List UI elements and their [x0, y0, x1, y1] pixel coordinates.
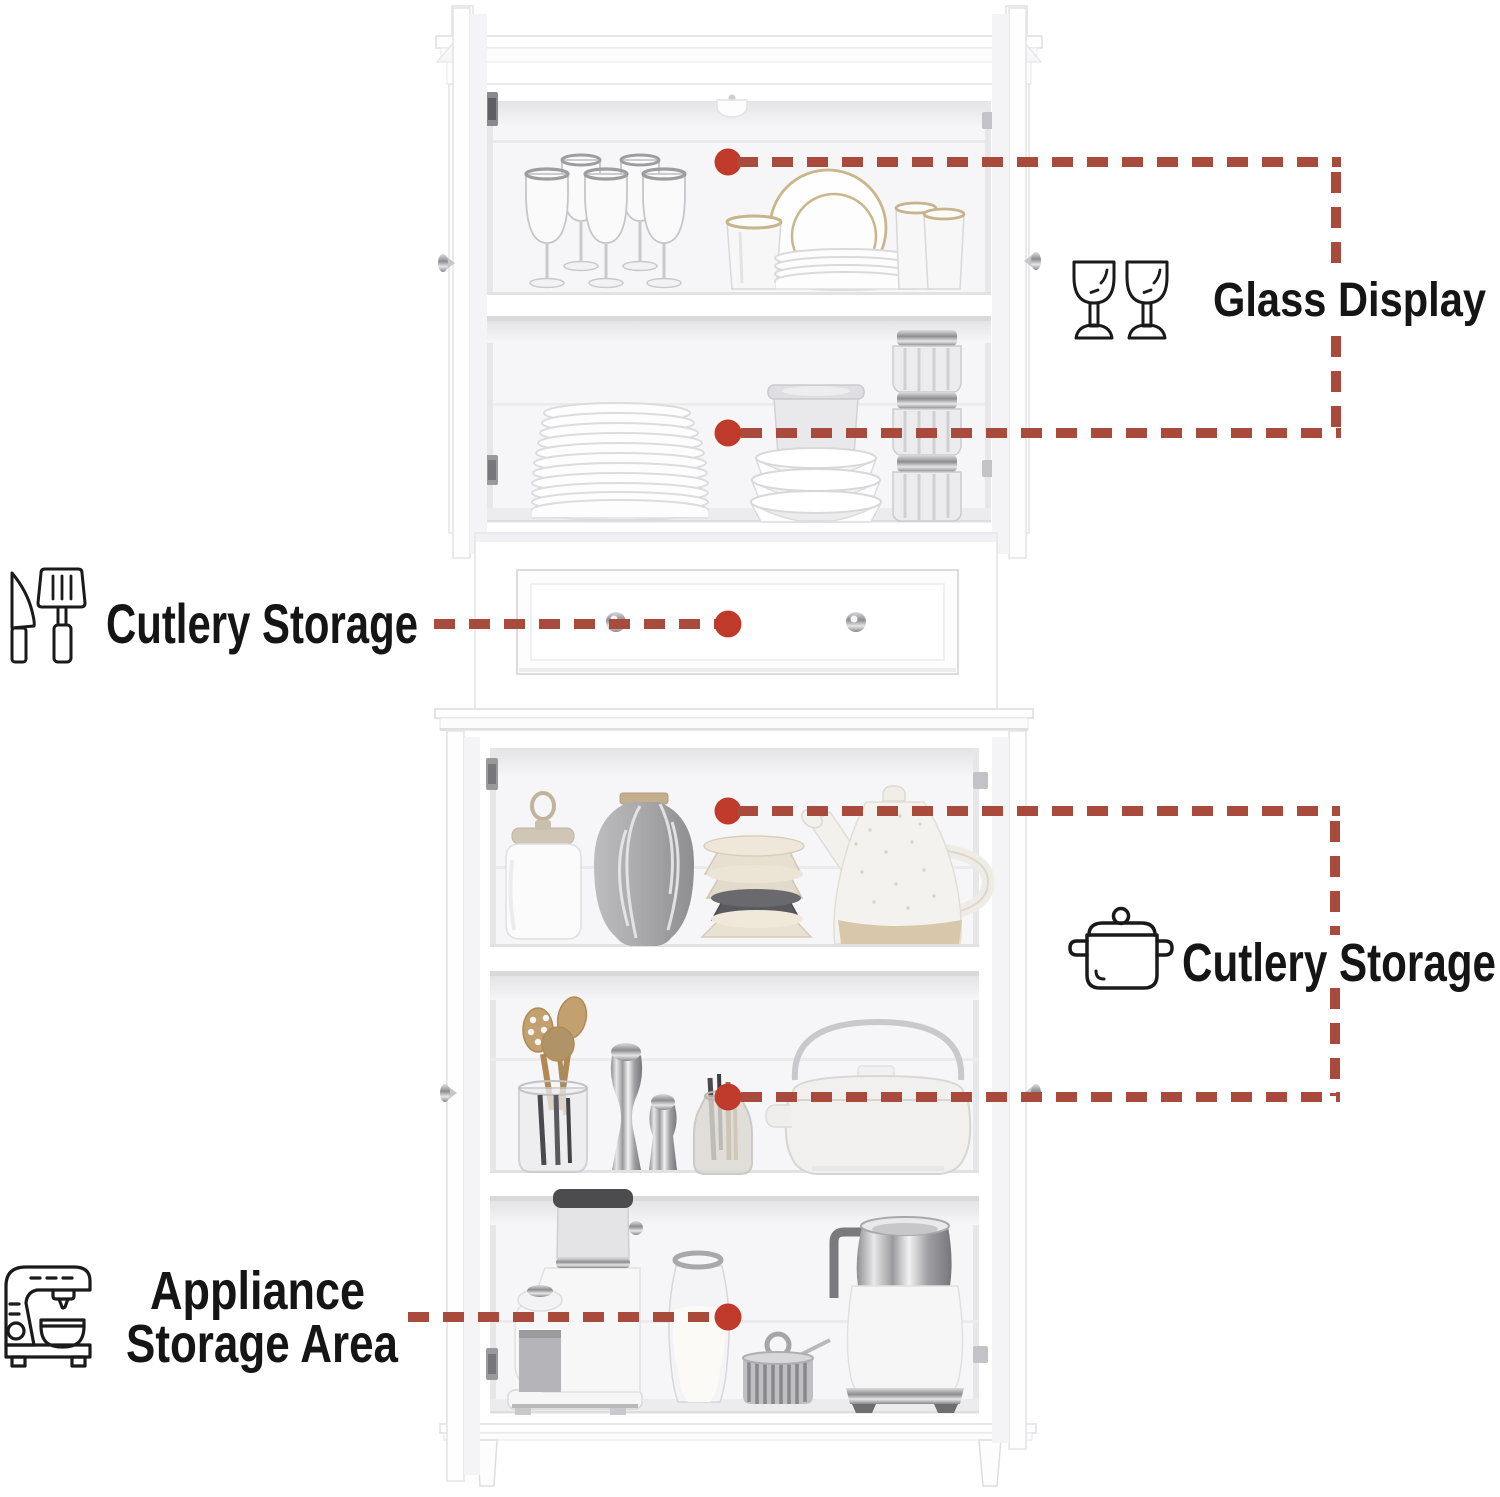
svg-text:Appliance: Appliance [150, 1261, 365, 1321]
svg-text:Storage Area: Storage Area [126, 1314, 399, 1374]
svg-text:Cutlery Storage: Cutlery Storage [106, 592, 418, 655]
svg-text:Cutlery Storage: Cutlery Storage [1182, 933, 1496, 993]
svg-text:Glass Display: Glass Display [1213, 274, 1486, 327]
